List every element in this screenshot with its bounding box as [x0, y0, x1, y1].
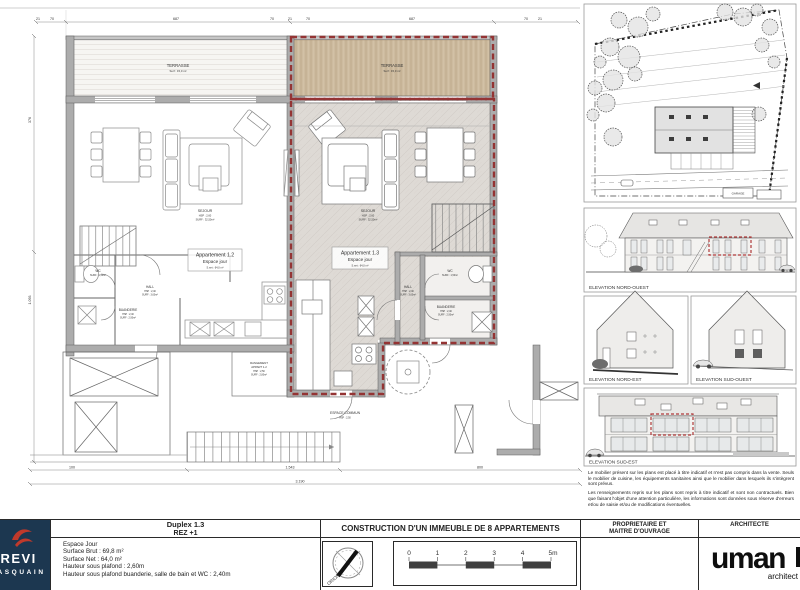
- sejour13-label: SEJOUR: [361, 209, 376, 213]
- dining-table: [91, 128, 151, 182]
- svg-text:SURF : 2,80m²: SURF : 2,80m²: [251, 374, 267, 377]
- svg-text:3.190: 3.190: [296, 480, 305, 484]
- architectural-plan-sheet: TERRASSE Surf : 15,0 m² TERRASSE Surf : …: [0, 0, 800, 590]
- compass-icon: ORION: [323, 542, 372, 586]
- buanderie13-label: BUANDERIE: [437, 305, 456, 309]
- hall13-label: HALL: [404, 285, 412, 289]
- svg-text:SURF : 1,50m²: SURF : 1,50m²: [442, 274, 458, 277]
- elevation-so-caption: ELEVATION SUD-OUEST: [696, 377, 752, 383]
- car-icon: [621, 180, 633, 186]
- svg-text:5m: 5m: [548, 550, 557, 557]
- elevation-sud-ouest: ELEVATION SUD-OUEST: [691, 291, 796, 384]
- sheet-info-lines: Espace Jour Surface Brut : 69,8 m² Surfa…: [63, 541, 231, 578]
- pmr-turning-circle: [386, 350, 430, 394]
- svg-text:70: 70: [524, 17, 528, 21]
- terrace-left-label: TERRASSE: [167, 63, 190, 68]
- title-block: TREVI PASQUAIN Duplex 1.3 REZ +1 Espace …: [0, 519, 800, 590]
- tv-unit: [295, 150, 299, 196]
- svg-text:Surf : 15,0 m²: Surf : 15,0 m²: [384, 69, 401, 73]
- sheet-info-cell: Duplex 1.3 REZ +1 Espace Jour Surface Br…: [50, 520, 320, 590]
- legal-disclaimer: Le mobilier présent sur les plans est pl…: [588, 470, 794, 510]
- stairs-apartment12: [80, 226, 136, 266]
- svg-text:SURF : 2,90m²: SURF : 2,90m²: [120, 317, 136, 320]
- svg-text:70: 70: [270, 17, 274, 21]
- svg-text:Espace jour: Espace jour: [348, 257, 373, 262]
- stairs-apartment13: [432, 204, 494, 252]
- espace-commun-label: ESPACE COMMUN: [330, 411, 361, 415]
- kitchen-apartment12: [185, 282, 287, 338]
- svg-text:3: 3: [492, 550, 496, 557]
- wc13-label: WC: [447, 269, 453, 273]
- elevation-nw-caption: ELEVATION NORD-OUEST: [589, 285, 649, 291]
- disclaimer-paragraph-2: Les renseignements repris sur les plans …: [588, 490, 794, 507]
- svg-text:SURF : 32,50m²: SURF : 32,50m²: [359, 218, 378, 222]
- apartment12-label: Appartement 1.2: [196, 253, 234, 259]
- svg-text:SURF : 3,60m²: SURF : 3,60m²: [142, 294, 158, 297]
- svg-text:70: 70: [306, 17, 310, 21]
- dining-table: [415, 128, 475, 182]
- svg-text:S.net : 64,0 m²: S.net : 64,0 m²: [351, 264, 368, 268]
- svg-text:687: 687: [409, 17, 415, 21]
- terrace-right-floor: [294, 40, 490, 96]
- owner-header: PROPRIETAIRE ET MAITRE D'OUVRAGE: [581, 520, 698, 538]
- terrace-right-label: TERRASSE: [381, 63, 404, 68]
- architect-header: ARCHITECTE: [699, 520, 800, 538]
- svg-text:0: 0: [407, 550, 411, 557]
- company-logo: TREVI PASQUAIN: [0, 520, 50, 590]
- garage-label: GARAGE: [732, 192, 745, 196]
- svg-text:376: 376: [28, 117, 32, 123]
- svg-text:Surf : 15,0 m²: Surf : 15,0 m²: [170, 69, 187, 73]
- svg-text:70: 70: [50, 17, 54, 21]
- architect-logo: uman: [711, 542, 785, 576]
- svg-text:SURF : 2,90m²: SURF : 2,90m²: [438, 314, 454, 317]
- toilet-apartment13: [469, 266, 493, 283]
- svg-text:Espace jour: Espace jour: [203, 259, 228, 264]
- svg-text:21: 21: [36, 17, 40, 21]
- architect-cell: ARCHITECTE uman architect: [698, 520, 800, 590]
- svg-text:HSP : 2,50: HSP : 2,50: [339, 417, 351, 420]
- project-title: CONSTRUCTION D'UN IMMEUBLE DE 8 APPARTEM…: [321, 520, 580, 538]
- svg-text:687: 687: [173, 17, 179, 21]
- hall12-label: HALL: [146, 285, 154, 289]
- north-compass: ORION: [322, 541, 373, 587]
- company-name: TREVI: [0, 551, 37, 566]
- apartment12-furniture: [75, 109, 288, 338]
- svg-text:SURF : 32,50m²: SURF : 32,50m²: [196, 218, 215, 222]
- wc12-label: WC: [95, 269, 101, 273]
- svg-text:1: 1: [436, 550, 440, 557]
- coffee-table: [199, 166, 221, 191]
- elevation-nord-ouest: ELEVATION NORD-OUEST: [584, 208, 796, 292]
- svg-text:4: 4: [521, 550, 525, 557]
- svg-text:APPART 1.2: APPART 1.2: [251, 365, 267, 369]
- apartment13-label: Appartement 1.3: [341, 251, 379, 257]
- coffee-table: [344, 166, 366, 191]
- company-subname: PASQUAIN: [0, 569, 46, 576]
- owner-cell: PROPRIETAIRE ET MAITRE D'OUVRAGE: [580, 520, 698, 590]
- site-and-elevations-drawing: GARAGE ELEVATION NORD-OUEST: [583, 0, 800, 516]
- exterior-stairs: [187, 432, 340, 462]
- storage-shafts-left: [63, 352, 170, 455]
- svg-text:HSP : 2,60: HSP : 2,60: [362, 214, 375, 218]
- svg-text:21: 21: [538, 17, 542, 21]
- svg-text:HSP : 2,60: HSP : 2,60: [199, 214, 212, 218]
- svg-text:1.093: 1.093: [28, 296, 32, 305]
- scale-bar: 0 1 2 3 4 5m: [394, 542, 576, 585]
- disclaimer-paragraph-1: Le mobilier présent sur les plans est pl…: [588, 470, 794, 487]
- washer-apartment13: [472, 312, 492, 332]
- buanderie12-label: BUANDERIE: [119, 308, 138, 312]
- architect-logo-sub: architect: [768, 572, 798, 581]
- compass-label: ORION: [326, 573, 341, 586]
- sheet-title: Duplex 1.3 REZ +1: [51, 520, 320, 538]
- svg-text:S.net : 64,0 m²: S.net : 64,0 m²: [206, 266, 223, 270]
- svg-text:SURF : 1,50m²: SURF : 1,50m²: [90, 274, 106, 277]
- elevation-se-caption: ELEVATION SUD-EST: [589, 460, 638, 466]
- sejour12-label: SEJOUR: [198, 209, 213, 213]
- bush: [629, 266, 643, 273]
- elevation-nord-est: ELEVATION NORD-EST: [584, 291, 688, 384]
- svg-text:800: 800: [477, 466, 483, 470]
- bush: [592, 359, 608, 369]
- tv-unit: [284, 150, 288, 196]
- scale-bar-box: 0 1 2 3 4 5m: [393, 541, 577, 586]
- site-plan: GARAGE: [584, 4, 796, 202]
- washer-apartment12: [78, 306, 96, 324]
- svg-text:2: 2: [464, 550, 468, 557]
- architect-logo-clipped-letter: [796, 547, 800, 567]
- svg-text:SURF : 3,60m²: SURF : 3,60m²: [400, 294, 416, 297]
- elevation-ne-caption: ELEVATION NORD-EST: [589, 377, 642, 383]
- elevation-sud-est: ELEVATION SUD-EST: [584, 388, 796, 466]
- floor-plan-drawing: TERRASSE Surf : 15,0 m² TERRASSE Surf : …: [0, 0, 583, 516]
- trevi-logo-icon: [8, 525, 38, 549]
- svg-text:21: 21: [288, 17, 292, 21]
- svg-text:1.543: 1.543: [286, 466, 295, 470]
- svg-text:100: 100: [69, 466, 75, 470]
- terrace-left-floor: [74, 40, 287, 96]
